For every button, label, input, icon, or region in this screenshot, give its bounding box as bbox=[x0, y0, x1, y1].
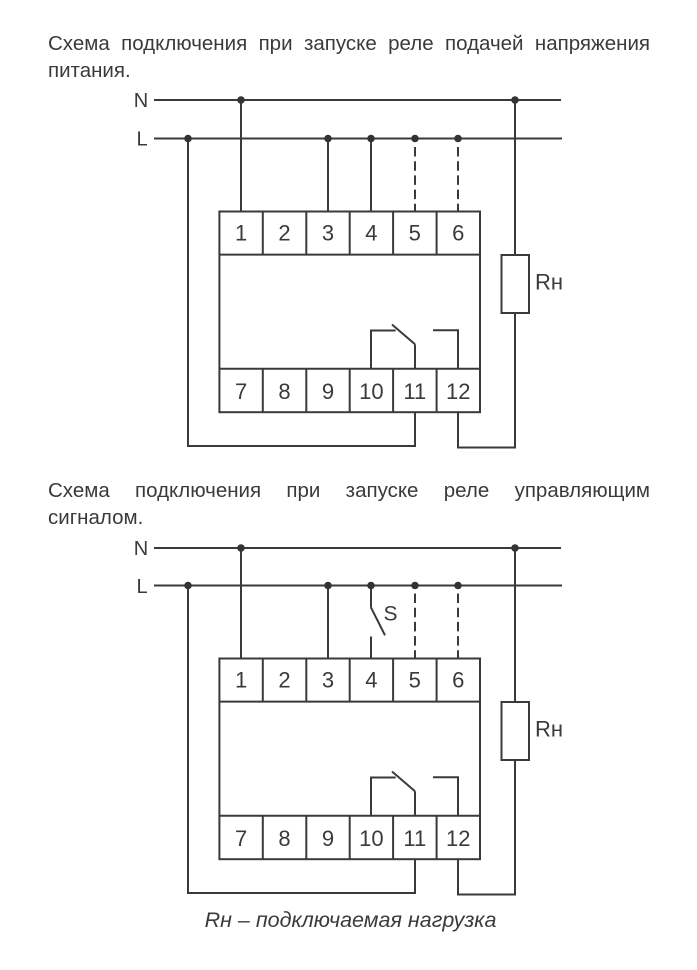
svg-text:4: 4 bbox=[365, 221, 377, 246]
svg-text:Rн: Rн bbox=[535, 270, 563, 295]
svg-text:1: 1 bbox=[235, 668, 247, 693]
svg-text:3: 3 bbox=[322, 221, 334, 246]
svg-text:12: 12 bbox=[446, 379, 470, 404]
svg-text:8: 8 bbox=[278, 826, 290, 851]
svg-text:7: 7 bbox=[235, 379, 247, 404]
svg-text:11: 11 bbox=[403, 826, 426, 851]
svg-text:10: 10 bbox=[359, 826, 383, 851]
svg-text:10: 10 bbox=[359, 379, 383, 404]
svg-text:9: 9 bbox=[322, 379, 334, 404]
svg-text:11: 11 bbox=[403, 379, 426, 404]
svg-text:8: 8 bbox=[278, 379, 290, 404]
svg-text:6: 6 bbox=[452, 668, 464, 693]
svg-text:Rн: Rн bbox=[535, 717, 563, 742]
svg-text:S: S bbox=[384, 603, 398, 626]
svg-text:5: 5 bbox=[409, 668, 421, 693]
svg-text:N: N bbox=[134, 90, 148, 112]
svg-text:L: L bbox=[136, 576, 147, 598]
svg-text:L: L bbox=[136, 129, 147, 151]
svg-text:6: 6 bbox=[452, 221, 464, 246]
svg-text:4: 4 bbox=[365, 668, 377, 693]
svg-text:1: 1 bbox=[235, 221, 247, 246]
svg-text:5: 5 bbox=[409, 221, 421, 246]
svg-text:2: 2 bbox=[278, 668, 290, 693]
svg-text:12: 12 bbox=[446, 826, 470, 851]
svg-text:N: N bbox=[134, 538, 148, 560]
svg-text:2: 2 bbox=[278, 221, 290, 246]
svg-text:7: 7 bbox=[235, 826, 247, 851]
svg-text:3: 3 bbox=[322, 668, 334, 693]
svg-text:9: 9 bbox=[322, 826, 334, 851]
